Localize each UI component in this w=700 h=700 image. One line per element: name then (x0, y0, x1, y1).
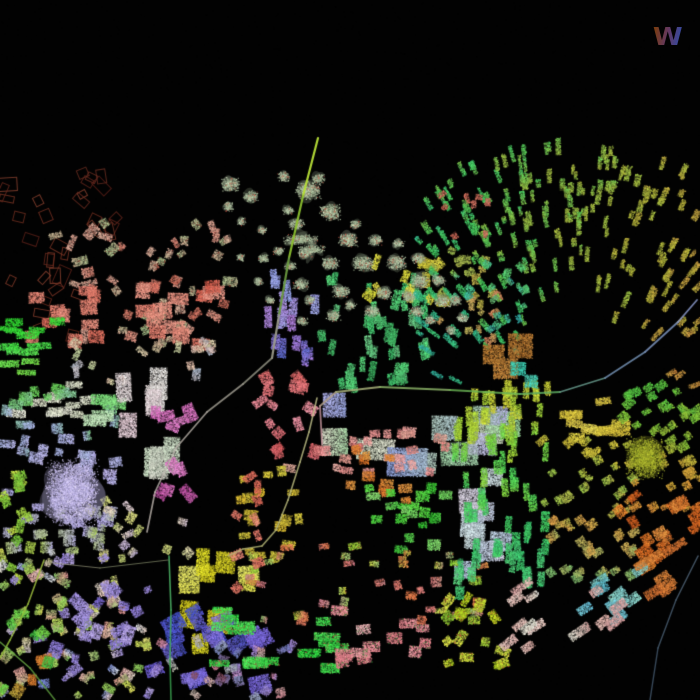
map-artwork: W (0, 0, 700, 700)
w-logo-text: W (653, 22, 682, 51)
w-logo-watermark: W (653, 24, 682, 49)
city-map-canvas (0, 0, 700, 700)
